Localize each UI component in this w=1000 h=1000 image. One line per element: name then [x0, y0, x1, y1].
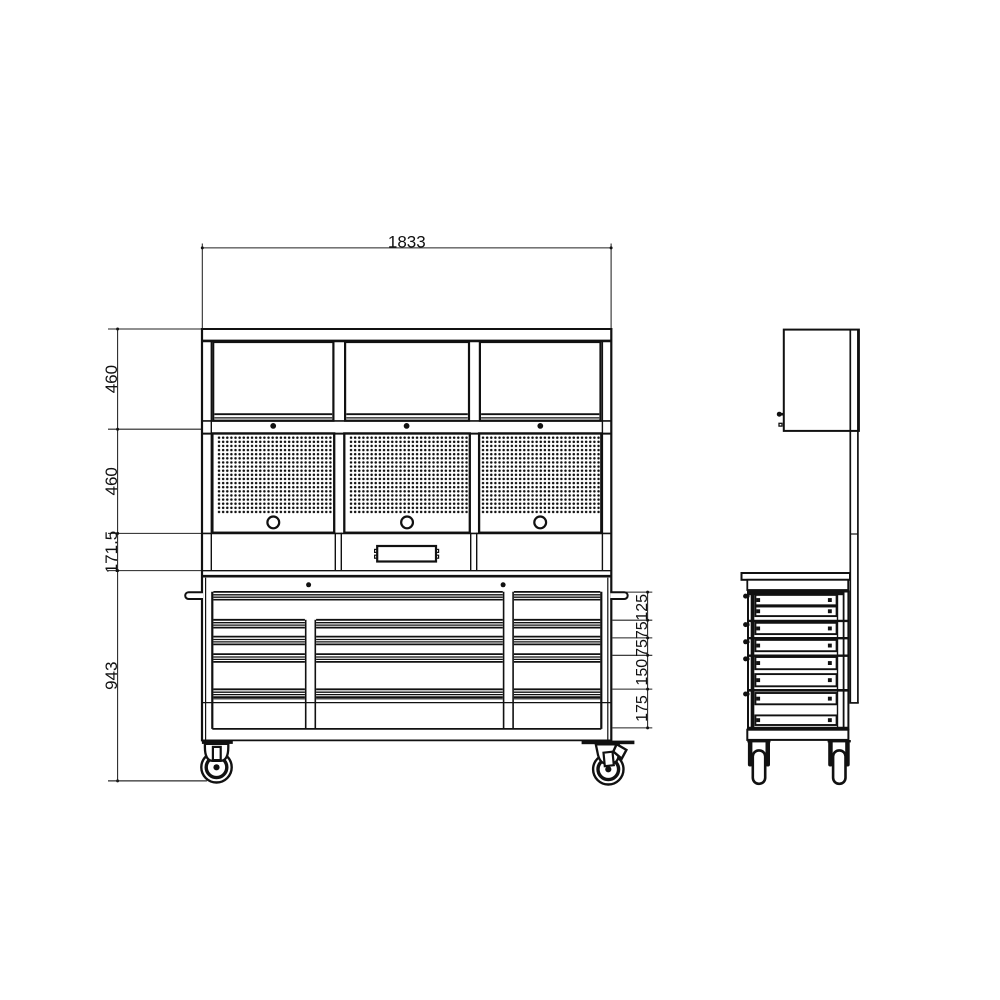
svg-text:75: 75	[634, 621, 651, 639]
svg-text:460: 460	[102, 467, 121, 495]
svg-text:943: 943	[102, 662, 121, 690]
svg-text:150: 150	[634, 659, 651, 686]
svg-text:1833: 1833	[388, 233, 426, 252]
svg-text:171.5: 171.5	[102, 531, 121, 574]
svg-text:460: 460	[102, 365, 121, 393]
svg-text:175: 175	[634, 695, 651, 722]
svg-text:125: 125	[634, 594, 651, 621]
svg-text:75: 75	[634, 639, 651, 657]
